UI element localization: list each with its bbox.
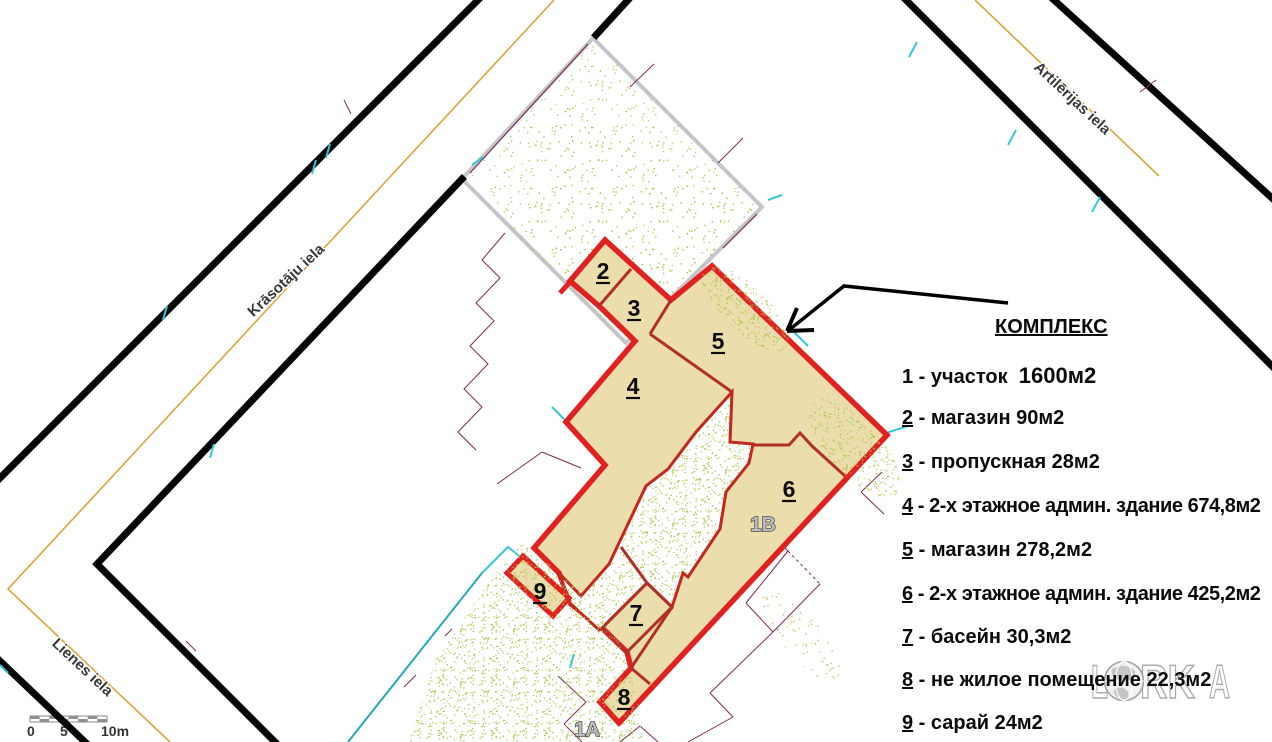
svg-text:0: 0 bbox=[27, 723, 35, 739]
svg-text:1B: 1B bbox=[750, 514, 776, 536]
svg-text:9: 9 bbox=[534, 578, 547, 604]
svg-text:10m: 10m bbox=[101, 723, 129, 739]
svg-text:7: 7 bbox=[630, 600, 643, 626]
svg-text:8: 8 bbox=[618, 684, 631, 710]
svg-text:A: A bbox=[1209, 655, 1230, 708]
svg-text:3: 3 bbox=[628, 295, 641, 321]
svg-text:4: 4 bbox=[627, 373, 640, 399]
svg-text:2: 2 bbox=[597, 258, 610, 284]
svg-text:5: 5 bbox=[712, 328, 725, 354]
svg-text:6: 6 bbox=[783, 476, 796, 502]
svg-text:1A: 1A bbox=[574, 719, 600, 741]
